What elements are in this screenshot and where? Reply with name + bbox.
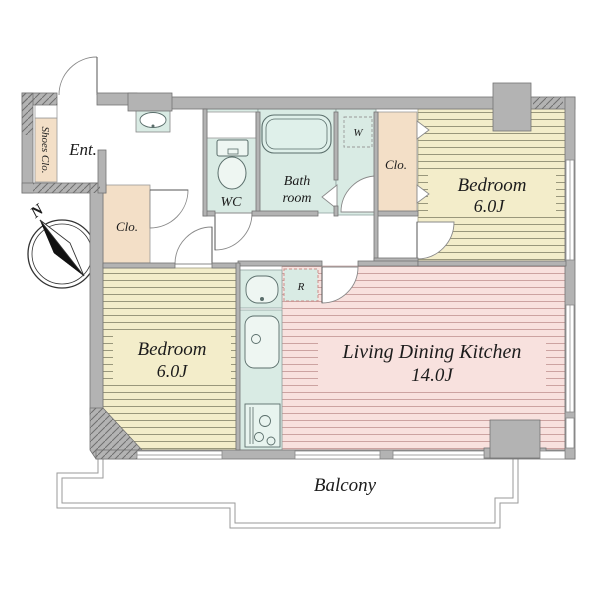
wall-int — [212, 263, 238, 268]
pillar-top-right — [493, 83, 531, 131]
wall-int — [252, 211, 318, 216]
wall-hatch — [533, 97, 563, 109]
wc-shelf — [207, 112, 256, 138]
vanity-basin-icon — [136, 110, 170, 132]
wall-int — [334, 206, 338, 216]
floor-plan: Balcony N — [0, 0, 600, 600]
stove-icon — [245, 404, 280, 447]
kitchen-sink-icon — [245, 316, 279, 368]
washer-label: W — [353, 127, 363, 139]
wall-int — [238, 261, 322, 266]
entrance-label: Ent. — [68, 140, 97, 159]
wall-int — [334, 112, 338, 180]
wall-hatch — [33, 183, 100, 193]
wall-hatch — [22, 93, 33, 135]
bathtub-icon — [262, 115, 331, 153]
bathroom-label-2: room — [282, 191, 311, 206]
window-icon — [566, 418, 574, 448]
bedroom-lower-area: 6.0J — [157, 361, 189, 381]
toilet-lever — [228, 149, 238, 154]
toilet-bowl — [218, 157, 246, 189]
wall-int — [103, 263, 175, 268]
closet-upper-label: Clo. — [385, 157, 407, 172]
refrigerator-label: R — [297, 281, 305, 293]
window-icon — [540, 451, 565, 459]
closet-lower-label: Clo. — [116, 219, 138, 234]
bedroom-upper-area: 6.0J — [474, 196, 506, 216]
wall-int — [358, 261, 418, 266]
wall-left — [90, 183, 103, 415]
wall-int — [377, 211, 418, 216]
wc-label: WC — [221, 195, 243, 210]
wall-partition-bedroom-ldk — [418, 261, 566, 266]
shoes-closet-label: Shoes Clo. — [39, 126, 51, 173]
wall-bedroom-kitchen — [236, 263, 240, 450]
ldk-area: 14.0J — [411, 365, 454, 386]
wall-duct-block — [128, 93, 172, 111]
pillar-bottom-right — [490, 420, 540, 458]
wall-int — [203, 109, 207, 216]
bathroom-label-1: Bath — [284, 174, 310, 189]
wall-int — [256, 112, 260, 211]
washbasin-icon — [246, 276, 278, 303]
bedroom-lower-label: Bedroom — [138, 339, 207, 360]
bedroom-upper-label: Bedroom — [458, 175, 527, 196]
floor-plan-canvas: Balcony N — [0, 0, 600, 600]
balcony-label: Balcony — [314, 475, 377, 496]
ldk-label: Living Dining Kitchen — [342, 341, 522, 363]
wall-int — [374, 112, 378, 263]
